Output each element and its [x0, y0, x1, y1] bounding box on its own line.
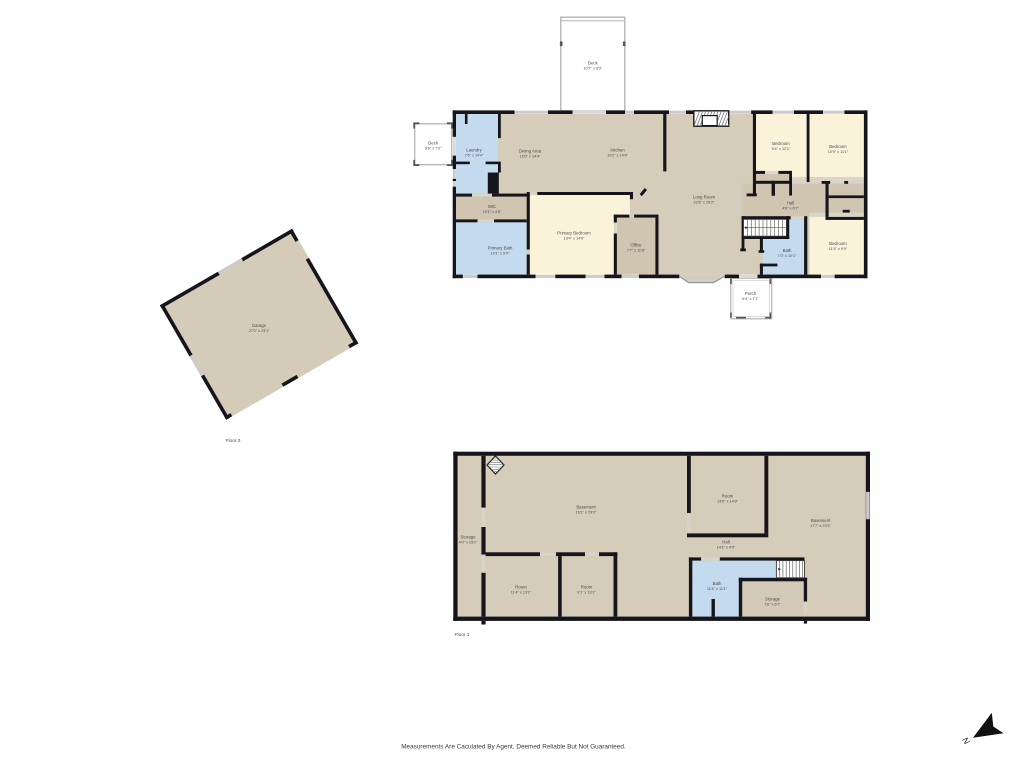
svg-text:Floor 1: Floor 1 [455, 632, 470, 638]
svg-text:Measurements Are Caculated By: Measurements Are Caculated By Agent. Dee… [401, 744, 626, 751]
svg-text:Floor 3: Floor 3 [226, 438, 241, 444]
